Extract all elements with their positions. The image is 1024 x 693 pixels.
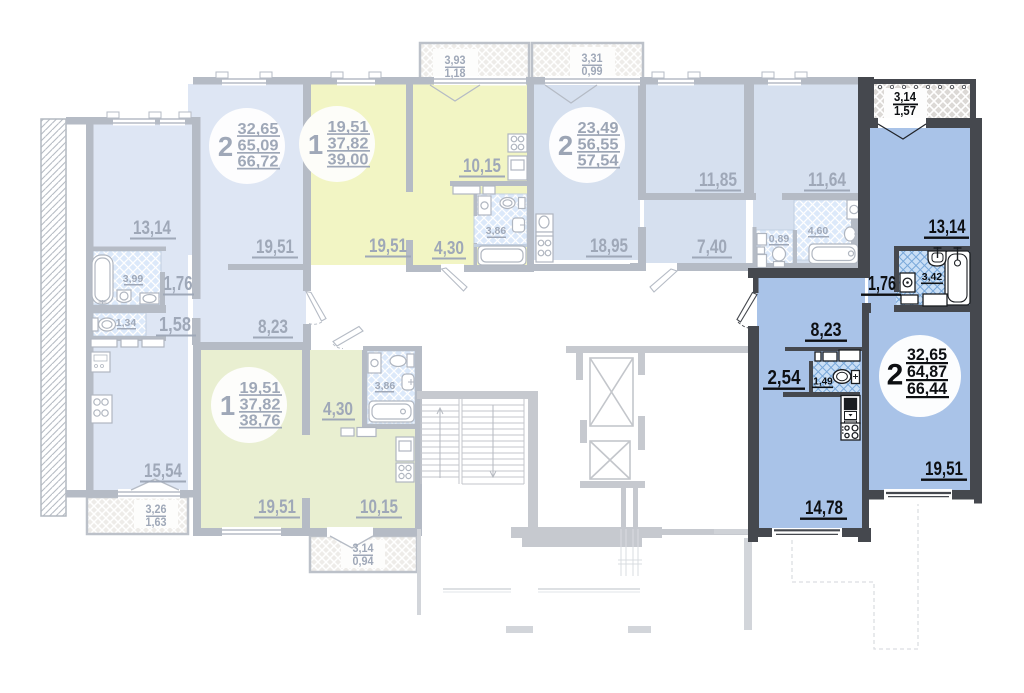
svg-text:1,58: 1,58 — [159, 314, 191, 336]
svg-text:3,14: 3,14 — [894, 90, 916, 104]
svg-text:3,93: 3,93 — [445, 53, 466, 67]
svg-text:1,63: 1,63 — [146, 515, 167, 529]
svg-text:13,14: 13,14 — [929, 217, 966, 238]
svg-text:1,18: 1,18 — [445, 66, 466, 80]
svg-text:4,30: 4,30 — [434, 238, 464, 258]
svg-text:10,15: 10,15 — [360, 497, 398, 518]
svg-text:3,86: 3,86 — [375, 380, 396, 392]
svg-text:2: 2 — [887, 359, 904, 392]
svg-text:15,54: 15,54 — [144, 461, 182, 482]
svg-text:65,09: 65,09 — [238, 138, 279, 155]
svg-text:1,57: 1,57 — [894, 104, 916, 118]
svg-text:1,34: 1,34 — [116, 317, 137, 329]
svg-text:11,85: 11,85 — [699, 170, 737, 191]
svg-text:1: 1 — [220, 390, 235, 421]
svg-text:13,14: 13,14 — [133, 218, 171, 239]
svg-text:14,78: 14,78 — [805, 498, 843, 519]
svg-text:2: 2 — [218, 131, 233, 162]
svg-text:8,23: 8,23 — [811, 320, 842, 341]
svg-text:3,31: 3,31 — [582, 51, 603, 65]
svg-text:56,55: 56,55 — [578, 137, 619, 154]
svg-text:3,86: 3,86 — [486, 225, 507, 237]
svg-text:3,99: 3,99 — [123, 273, 144, 285]
svg-text:0,89: 0,89 — [769, 233, 790, 245]
svg-text:19,51: 19,51 — [369, 236, 407, 257]
svg-text:37,82: 37,82 — [240, 397, 281, 414]
svg-text:0,94: 0,94 — [353, 554, 374, 568]
svg-text:19,51: 19,51 — [258, 497, 296, 518]
svg-text:1: 1 — [308, 129, 323, 160]
svg-text:19,51: 19,51 — [925, 459, 963, 480]
svg-text:4,60: 4,60 — [808, 225, 829, 237]
svg-text:4,30: 4,30 — [323, 399, 353, 419]
svg-text:18,95: 18,95 — [590, 236, 628, 257]
svg-text:1,76: 1,76 — [164, 273, 193, 295]
svg-text:3,42: 3,42 — [922, 271, 943, 283]
svg-text:2,54: 2,54 — [768, 367, 802, 389]
svg-text:7,40: 7,40 — [697, 237, 727, 258]
svg-text:1,49: 1,49 — [813, 377, 833, 388]
svg-text:19,51: 19,51 — [256, 237, 294, 258]
svg-text:11,64: 11,64 — [808, 170, 846, 191]
svg-text:8,23: 8,23 — [258, 317, 288, 338]
svg-text:3,26: 3,26 — [146, 502, 167, 516]
svg-text:2: 2 — [558, 130, 573, 161]
svg-text:3,14: 3,14 — [353, 541, 374, 555]
svg-text:0,99: 0,99 — [582, 64, 603, 78]
svg-text:37,82: 37,82 — [328, 136, 369, 153]
svg-text:10,15: 10,15 — [463, 156, 501, 177]
svg-text:64,87: 64,87 — [907, 363, 947, 381]
svg-text:1,76: 1,76 — [868, 273, 896, 295]
svg-text:66,44: 66,44 — [907, 380, 948, 398]
svg-text:32,65: 32,65 — [907, 346, 947, 364]
